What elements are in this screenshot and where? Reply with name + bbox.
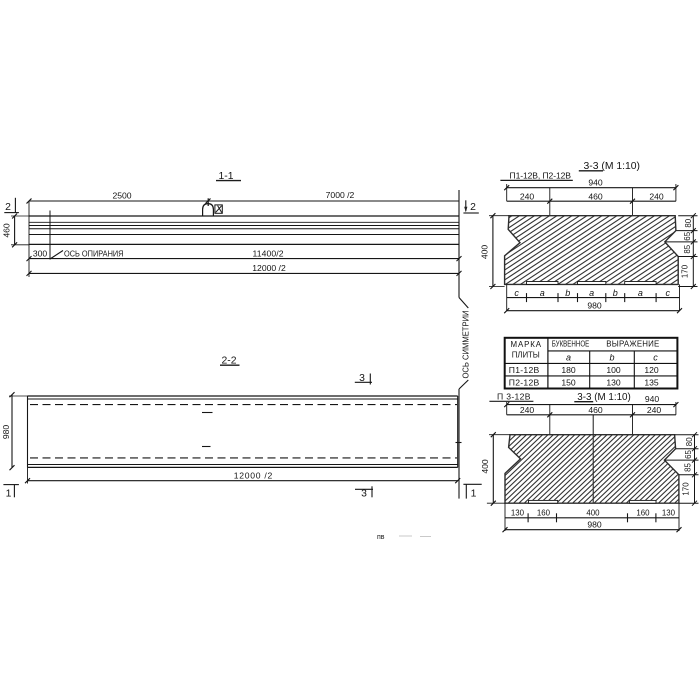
- svg-text:2500: 2500: [112, 191, 131, 201]
- svg-text:65: 65: [683, 231, 692, 240]
- svg-text:160: 160: [636, 509, 650, 518]
- svg-text:170: 170: [682, 482, 691, 496]
- svg-text:240: 240: [649, 191, 664, 201]
- svg-text:1: 1: [471, 489, 477, 500]
- svg-text:65: 65: [684, 450, 693, 459]
- svg-text:240: 240: [647, 405, 662, 415]
- svg-text:170: 170: [680, 264, 689, 278]
- svg-text:400: 400: [480, 245, 490, 260]
- svg-text:b: b: [609, 352, 614, 362]
- svg-text:a: a: [566, 352, 571, 362]
- svg-text:130: 130: [511, 509, 525, 518]
- svg-text:2: 2: [5, 202, 11, 213]
- svg-text:120: 120: [644, 365, 659, 375]
- svg-text:1: 1: [6, 489, 12, 500]
- svg-text:460: 460: [588, 191, 603, 201]
- svg-text:3: 3: [361, 489, 367, 500]
- svg-text:7000 /2: 7000 /2: [326, 190, 355, 200]
- svg-text:a: a: [638, 288, 643, 298]
- svg-text:12000 /2: 12000 /2: [252, 263, 286, 273]
- svg-text:a: a: [589, 288, 594, 298]
- svg-text:ВЫРАЖЕНИЕ: ВЫРАЖЕНИЕ: [606, 339, 659, 348]
- svg-text:135: 135: [644, 377, 659, 387]
- svg-text:150: 150: [561, 377, 576, 387]
- svg-text:980: 980: [587, 520, 602, 530]
- svg-text:130: 130: [606, 377, 621, 387]
- svg-text:П1-12В, П2-12В: П1-12В, П2-12В: [510, 170, 572, 180]
- svg-text:П2-12В: П2-12В: [509, 377, 540, 387]
- svg-text:460: 460: [2, 223, 12, 238]
- svg-text:c: c: [653, 352, 658, 362]
- svg-text:240: 240: [520, 405, 535, 415]
- svg-text:940: 940: [588, 178, 603, 188]
- svg-text:пв: пв: [377, 534, 385, 541]
- svg-text:МАРКА: МАРКА: [511, 340, 542, 349]
- svg-text:400: 400: [480, 459, 490, 474]
- svg-text:12000 /2: 12000 /2: [234, 471, 273, 481]
- svg-text:c: c: [666, 288, 671, 298]
- svg-text:160: 160: [537, 509, 551, 518]
- svg-text:b: b: [565, 288, 570, 298]
- svg-text:2: 2: [470, 202, 476, 213]
- svg-text:П1-12В: П1-12В: [509, 365, 540, 375]
- svg-text:240: 240: [520, 191, 535, 201]
- svg-text:b: b: [613, 288, 618, 298]
- svg-text:100: 100: [606, 365, 621, 375]
- svg-text:П 3-12В: П 3-12В: [497, 392, 531, 402]
- svg-text:ОСЬ ОПИРАНИЯ: ОСЬ ОПИРАНИЯ: [64, 249, 124, 259]
- svg-text:980: 980: [1, 425, 11, 440]
- svg-text:180: 180: [561, 365, 576, 375]
- svg-text:400: 400: [586, 509, 600, 518]
- svg-text:c: c: [514, 288, 519, 298]
- svg-text:130: 130: [662, 509, 676, 518]
- svg-text:85: 85: [683, 463, 692, 472]
- svg-text:11400/2: 11400/2: [253, 248, 284, 258]
- svg-text:940: 940: [645, 394, 660, 404]
- svg-text:ОСЬ СИММЕТРИИ: ОСЬ СИММЕТРИИ: [462, 310, 471, 378]
- svg-text:85: 85: [683, 244, 692, 253]
- svg-text:БУКВЕННОЕ: БУКВЕННОЕ: [552, 339, 590, 348]
- svg-text:80: 80: [685, 437, 694, 446]
- svg-text:460: 460: [588, 405, 603, 415]
- svg-text:980: 980: [587, 301, 602, 311]
- svg-text:80: 80: [684, 218, 693, 227]
- svg-text:300: 300: [33, 248, 48, 258]
- svg-text:ПЛИТЫ: ПЛИТЫ: [512, 351, 540, 360]
- svg-text:a: a: [540, 288, 545, 298]
